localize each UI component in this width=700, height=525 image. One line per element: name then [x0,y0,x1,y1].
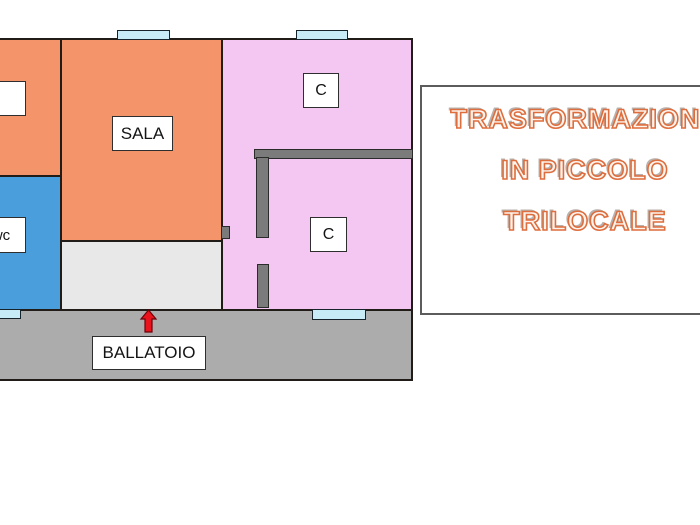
ballatoio-label-text: BALLATOIO [103,343,196,363]
title-line-2: IN PICCOLO [422,145,700,196]
wc-label-text: wc [0,227,10,244]
floorplan-slide: wc SALA C C BALLATOIO TRASFORMAZIONE IN … [0,0,700,525]
title-line-3: TRILOCALE [422,196,700,247]
window-top-camera [296,30,348,40]
sala-label-text: SALA [121,124,164,144]
entrance-arrow-icon [139,309,158,334]
room-top-left-label [0,81,26,116]
camera-bottom-label: C [310,217,347,252]
wall-stub [221,226,230,239]
room-entrance [60,240,223,312]
window-bottom-wc [0,309,21,319]
partition-wall-vertical-lower [257,264,269,308]
sala-label: SALA [112,116,173,151]
title-line-1: TRASFORMAZIONE [422,94,700,145]
ballatoio-label: BALLATOIO [92,336,206,370]
window-bottom-camera [312,309,366,320]
title-panel: TRASFORMAZIONE IN PICCOLO TRILOCALE [420,85,700,315]
camera-top-label: C [303,73,339,108]
camera-bottom-label-text: C [323,226,335,244]
window-top-sala [117,30,170,40]
wc-label: wc [0,217,26,253]
camera-top-label-text: C [315,82,327,100]
partition-wall-vertical-upper [256,157,269,238]
partition-wall-horizontal [254,149,413,159]
